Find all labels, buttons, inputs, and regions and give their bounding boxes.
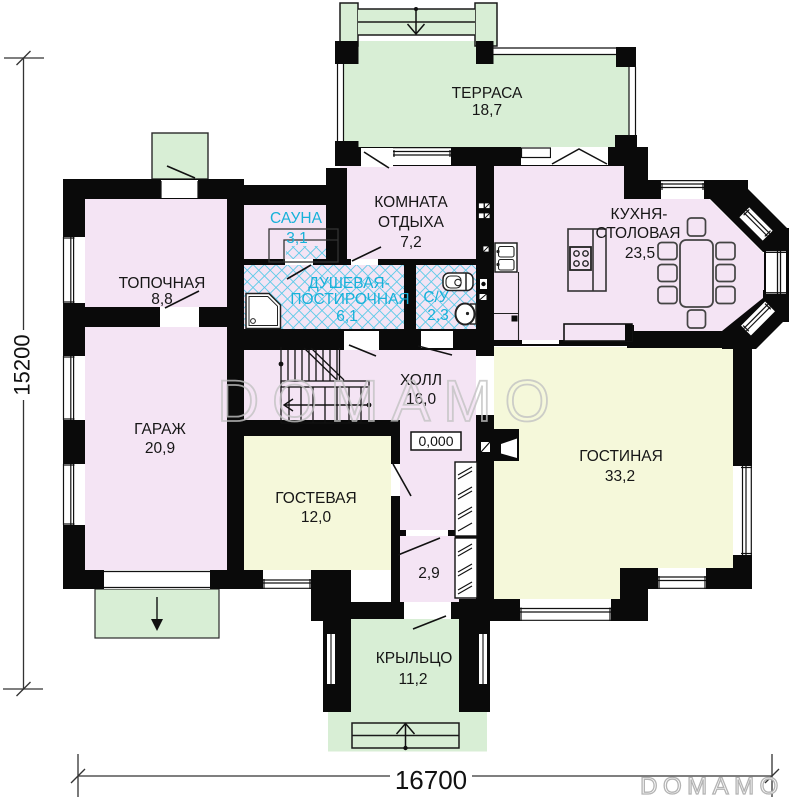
svg-text:КОМНАТА: КОМНАТА xyxy=(374,194,448,211)
svg-text:11,2: 11,2 xyxy=(398,671,427,688)
svg-text:С/У: С/У xyxy=(423,289,449,306)
svg-text:33,2: 33,2 xyxy=(605,468,635,485)
svg-text:18,7: 18,7 xyxy=(472,102,502,119)
svg-text:ТЕРРАСА: ТЕРРАСА xyxy=(452,85,523,102)
svg-text:ПОСТИРОЧНАЯ: ПОСТИРОЧНАЯ xyxy=(290,291,409,308)
svg-text:12,0: 12,0 xyxy=(301,509,332,526)
svg-text:0,000: 0,000 xyxy=(418,433,453,449)
svg-text:DOMAMO: DOMAMO xyxy=(217,369,562,434)
svg-text:ОТДЫХА: ОТДЫХА xyxy=(378,214,445,231)
svg-text:ТОПОЧНАЯ: ТОПОЧНАЯ xyxy=(119,275,206,292)
svg-text:23,5: 23,5 xyxy=(625,245,655,262)
svg-text:ГОСТЕВАЯ: ГОСТЕВАЯ xyxy=(275,490,356,507)
svg-text:DOMAMO: DOMAMO xyxy=(640,773,784,800)
svg-text:ДУШЕВАЯ-: ДУШЕВАЯ- xyxy=(308,275,390,292)
svg-text:ГАРАЖ: ГАРАЖ xyxy=(134,421,186,438)
svg-text:15200: 15200 xyxy=(10,334,35,395)
svg-text:6,1: 6,1 xyxy=(336,308,358,325)
svg-text:20,9: 20,9 xyxy=(145,440,175,457)
svg-text:2,3: 2,3 xyxy=(427,307,449,324)
svg-text:7,2: 7,2 xyxy=(400,234,422,251)
svg-text:КУХНЯ-: КУХНЯ- xyxy=(611,206,668,223)
svg-text:КРЫЛЬЦО: КРЫЛЬЦО xyxy=(376,650,453,667)
svg-text:САУНА: САУНА xyxy=(270,210,323,227)
svg-text:2,9: 2,9 xyxy=(418,565,440,582)
svg-text:16700: 16700 xyxy=(395,765,467,795)
svg-text:ГОСТИНАЯ: ГОСТИНАЯ xyxy=(579,448,663,465)
svg-text:3,1: 3,1 xyxy=(286,230,308,247)
svg-text:СТОЛОВАЯ: СТОЛОВАЯ xyxy=(596,225,681,242)
svg-text:8,8: 8,8 xyxy=(151,291,173,308)
